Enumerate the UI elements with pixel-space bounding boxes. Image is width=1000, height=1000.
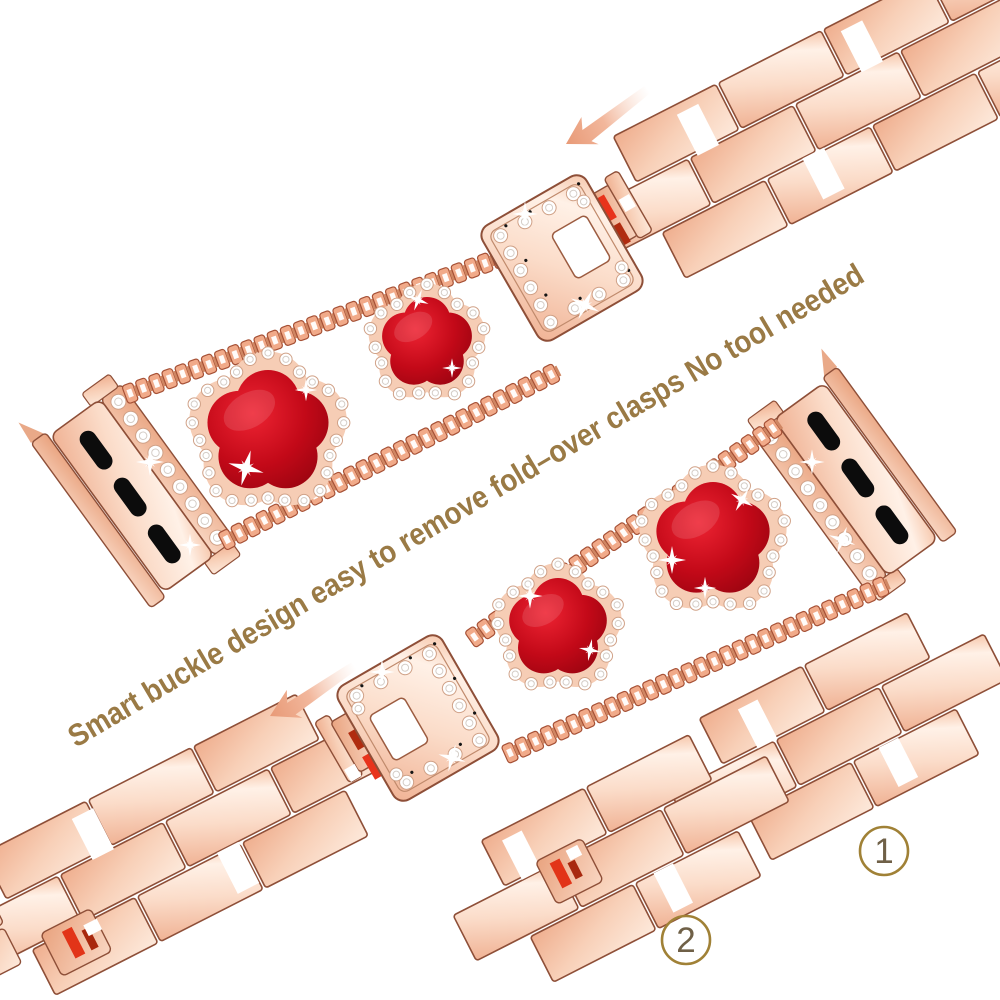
clover-charm [492,558,625,690]
product-photo-watch-band: Smart buckle design easy to remove fold–… [0,0,1000,1000]
step-1-badge: 1 [860,827,908,875]
step-1-number: 1 [874,832,893,871]
step-2-number: 2 [676,921,695,960]
step-2-badge: 2 [662,916,710,964]
scene: Smart buckle design easy to remove fold–… [0,0,1000,1000]
